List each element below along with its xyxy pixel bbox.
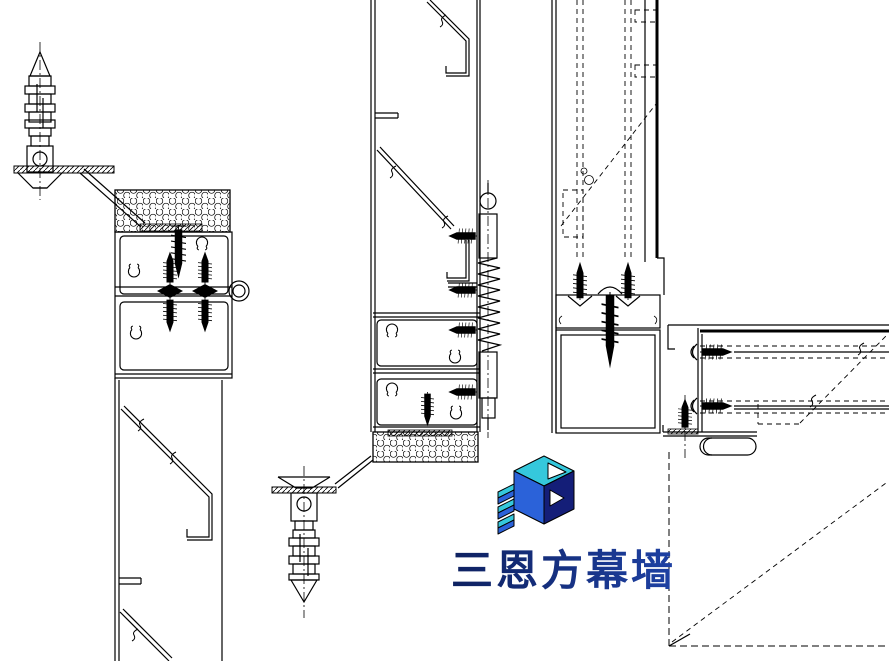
- anchor-plate: [272, 487, 336, 493]
- curtain-wall-detail-drawing: 三恩方幕墙: [0, 0, 889, 661]
- cad-canvas: 三恩方幕墙: [0, 0, 889, 661]
- screw-base-plate: [668, 429, 698, 434]
- anchor-plate: [14, 166, 114, 173]
- logo-text: 三恩方幕墙: [451, 547, 676, 594]
- left-mullion-section: [14, 42, 249, 661]
- brand-logo: 三恩方幕墙: [451, 456, 676, 594]
- hidden-screw-left: [568, 262, 592, 306]
- adjustable-spring-rod: [478, 180, 500, 438]
- insulation-block: [373, 430, 478, 462]
- horizontal-screw-bottom: [691, 398, 889, 414]
- gasket: [700, 438, 756, 455]
- middle-mullion-section: [272, 0, 500, 618]
- corner-vertical-section: [552, 0, 664, 433]
- spring-clip: [128, 264, 139, 277]
- anchor-bolt-down: [272, 466, 336, 618]
- anchor-bolt-up: [14, 42, 114, 200]
- hidden-diagonal: [758, 336, 886, 424]
- corner-horizontal-section: [663, 325, 889, 646]
- horizontal-screws: [448, 229, 477, 400]
- flashing-profile-1: [121, 406, 212, 540]
- hidden-screw-right: [616, 262, 640, 306]
- 3n-cube-logo: [498, 456, 574, 534]
- hidden-glass-corner: [669, 452, 889, 646]
- spring-clip: [130, 326, 141, 339]
- panel-frame: [371, 0, 480, 432]
- bolt-right: [192, 251, 218, 332]
- spring-clip: [196, 237, 207, 250]
- flashing-profile-2: [119, 578, 172, 661]
- bracket-arm: [335, 456, 373, 488]
- lower-panel: [115, 378, 222, 661]
- screw-down: [421, 392, 434, 426]
